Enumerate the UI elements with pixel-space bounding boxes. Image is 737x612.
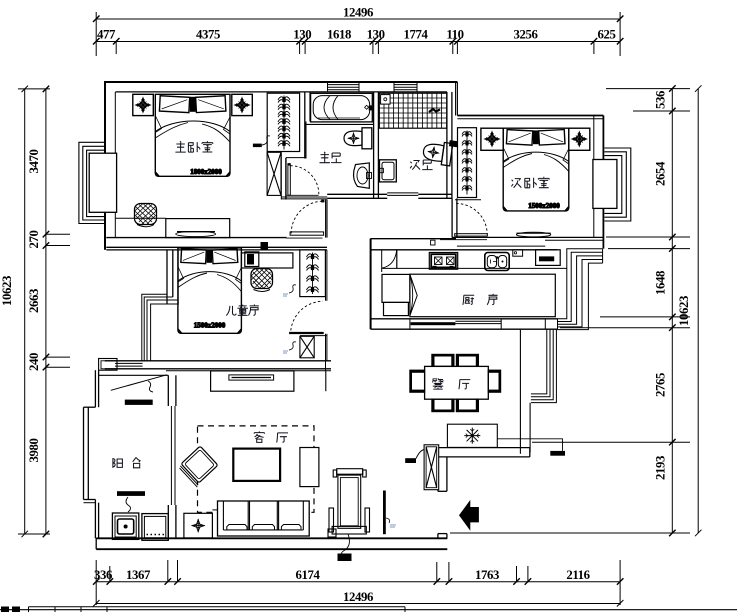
svg-text:130: 130 (293, 28, 311, 42)
svg-text:4375: 4375 (196, 28, 220, 42)
svg-text:10623: 10623 (0, 276, 14, 306)
svg-text:10623: 10623 (677, 296, 691, 326)
svg-text:625: 625 (598, 28, 616, 42)
svg-text:130: 130 (367, 28, 385, 42)
svg-text:477: 477 (97, 28, 116, 42)
svg-text:12496: 12496 (343, 6, 374, 20)
svg-text:336: 336 (94, 568, 113, 582)
svg-text:12496: 12496 (343, 590, 374, 604)
svg-text:240: 240 (27, 353, 41, 371)
svg-text:3256: 3256 (514, 28, 539, 42)
svg-text:3470: 3470 (27, 150, 41, 174)
svg-text:1774: 1774 (404, 28, 429, 42)
svg-text:2193: 2193 (654, 456, 668, 480)
svg-text:1763: 1763 (475, 568, 499, 582)
svg-text:1800x2000: 1800x2000 (190, 168, 222, 176)
svg-text:6174: 6174 (296, 568, 321, 582)
svg-text:3980: 3980 (27, 439, 41, 463)
svg-text:2663: 2663 (27, 289, 41, 313)
svg-text:1500x2000: 1500x2000 (528, 202, 560, 210)
svg-text:536: 536 (654, 90, 668, 109)
svg-text:1648: 1648 (654, 271, 668, 295)
svg-text:2116: 2116 (566, 568, 590, 582)
svg-text:2765: 2765 (654, 373, 668, 397)
svg-text:1500x2000: 1500x2000 (194, 322, 226, 330)
svg-text:270: 270 (27, 231, 41, 249)
svg-text:110: 110 (446, 28, 463, 42)
svg-text:2654: 2654 (654, 161, 668, 186)
svg-text:1618: 1618 (327, 28, 351, 42)
svg-text:1367: 1367 (126, 568, 151, 582)
